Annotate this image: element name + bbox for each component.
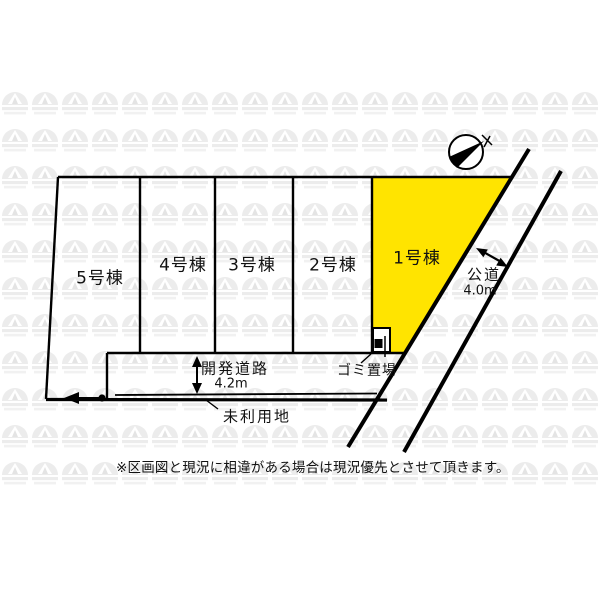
- garbage-area-label: ゴミ置場: [337, 364, 397, 378]
- unused-land-bottom-line: [46, 400, 387, 401]
- plot-map: 5号棟 4号棟 3号棟 2号棟 1号棟 公道 4.0m 開発道路 4.2m ゴミ…: [0, 0, 600, 600]
- plot-map-drawing: [0, 0, 600, 600]
- public-road-width: 4.0m: [463, 285, 496, 298]
- parcel-label-1: 1号棟: [393, 251, 441, 268]
- parcel-label-4: 4号棟: [159, 258, 207, 275]
- parcel-label-2: 2号棟: [309, 258, 357, 275]
- dev-road-width: 4.2m: [214, 378, 247, 391]
- parcel-label-5: 5号棟: [76, 271, 124, 288]
- arrow-origin-dot: [98, 394, 105, 401]
- garbage-box-marker: [375, 339, 383, 348]
- unused-land-label: 未利用地: [223, 410, 291, 425]
- dev-road-label: 開発道路: [201, 362, 269, 377]
- public-road-label: 公道: [467, 268, 501, 283]
- parcel-label-3: 3号棟: [228, 258, 276, 275]
- disclaimer-text: ※区画図と現況に相違がある場合は現況優先とさせて頂きます。: [116, 456, 510, 476]
